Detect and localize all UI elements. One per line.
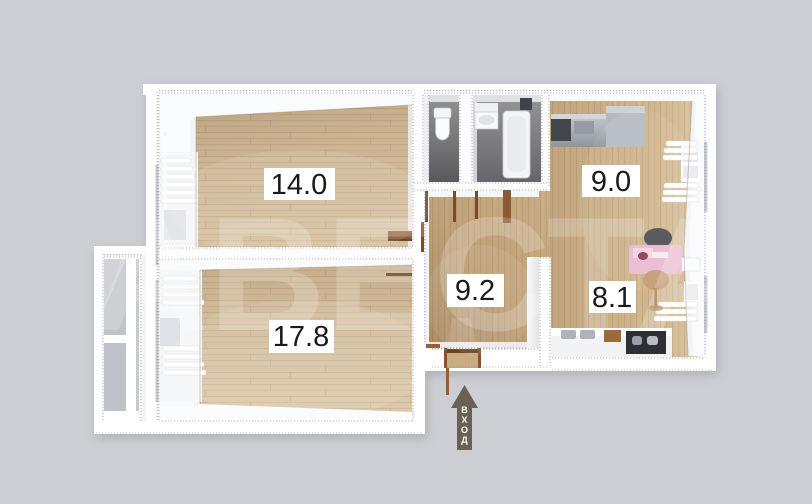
svg-text:В: В bbox=[461, 405, 468, 415]
svg-text:17.8: 17.8 bbox=[273, 321, 329, 353]
svg-text:14.0: 14.0 bbox=[271, 169, 327, 201]
svg-text:Д: Д bbox=[461, 435, 468, 445]
svg-text:9.0: 9.0 bbox=[591, 166, 631, 198]
svg-text:8.1: 8.1 bbox=[592, 282, 632, 314]
svg-text:АВЕСТА: АВЕСТА bbox=[92, 184, 753, 365]
svg-text:О: О bbox=[461, 425, 468, 435]
svg-text:9.2: 9.2 bbox=[455, 275, 495, 307]
svg-text:Х: Х bbox=[461, 415, 467, 425]
